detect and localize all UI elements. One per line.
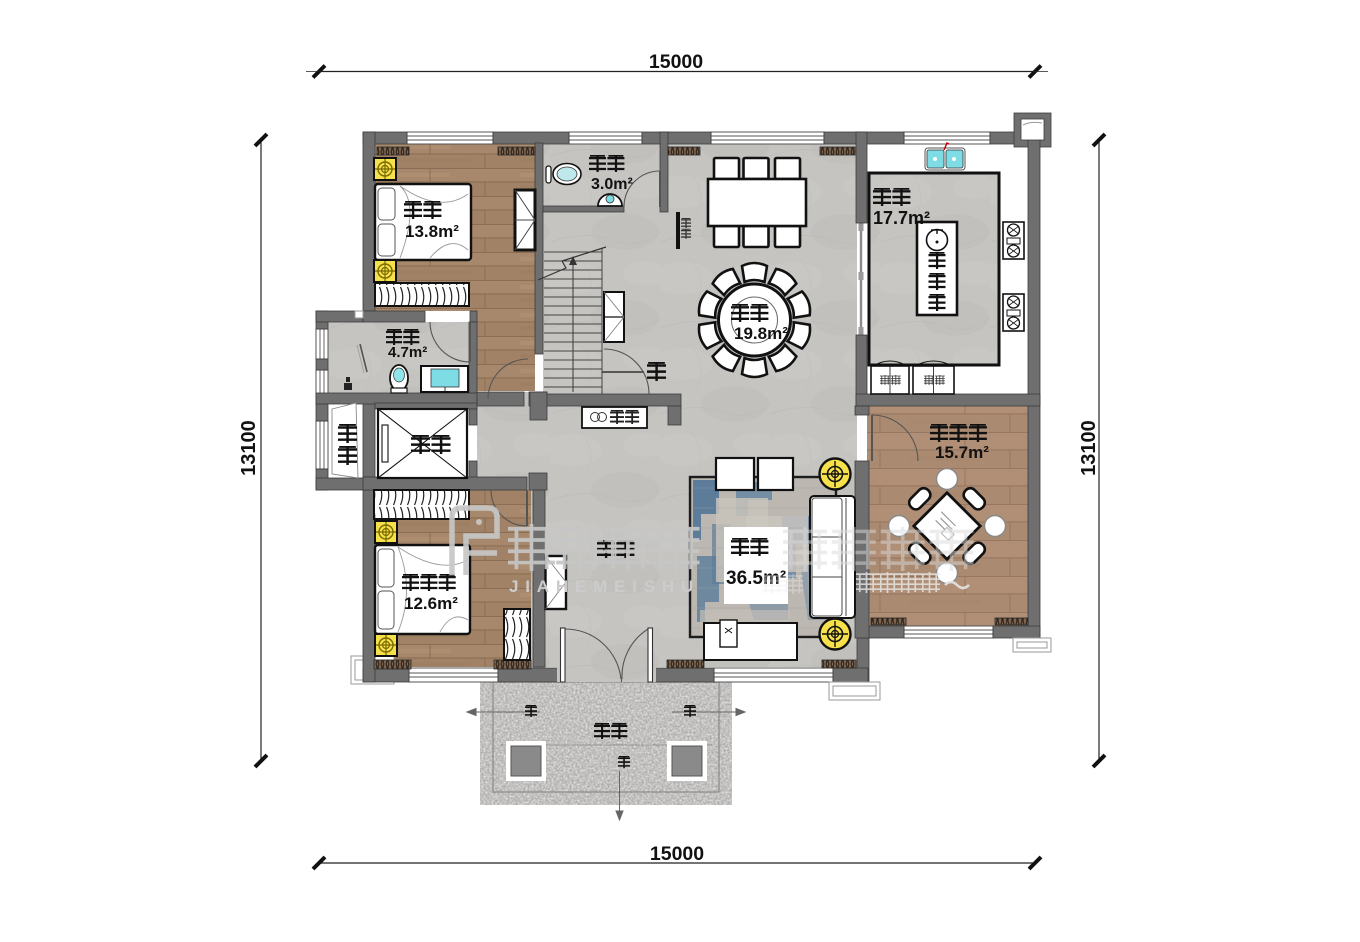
svg-text:3.0m²: 3.0m² — [591, 176, 633, 193]
svg-text:13.8m²: 13.8m² — [405, 222, 459, 241]
svg-text:15000: 15000 — [649, 51, 703, 73]
svg-text:13100: 13100 — [1078, 420, 1100, 476]
svg-text:13100: 13100 — [238, 420, 260, 476]
svg-text:12.6m²: 12.6m² — [404, 594, 458, 613]
svg-text:15.7m²: 15.7m² — [935, 443, 989, 462]
svg-text:JIAHEMEISHU: JIAHEMEISHU — [509, 577, 700, 596]
svg-text:19.8m²: 19.8m² — [734, 324, 788, 343]
svg-text:17.7m²: 17.7m² — [873, 208, 930, 228]
svg-text:15000: 15000 — [650, 843, 704, 865]
svg-text:4.7m²: 4.7m² — [388, 344, 427, 361]
